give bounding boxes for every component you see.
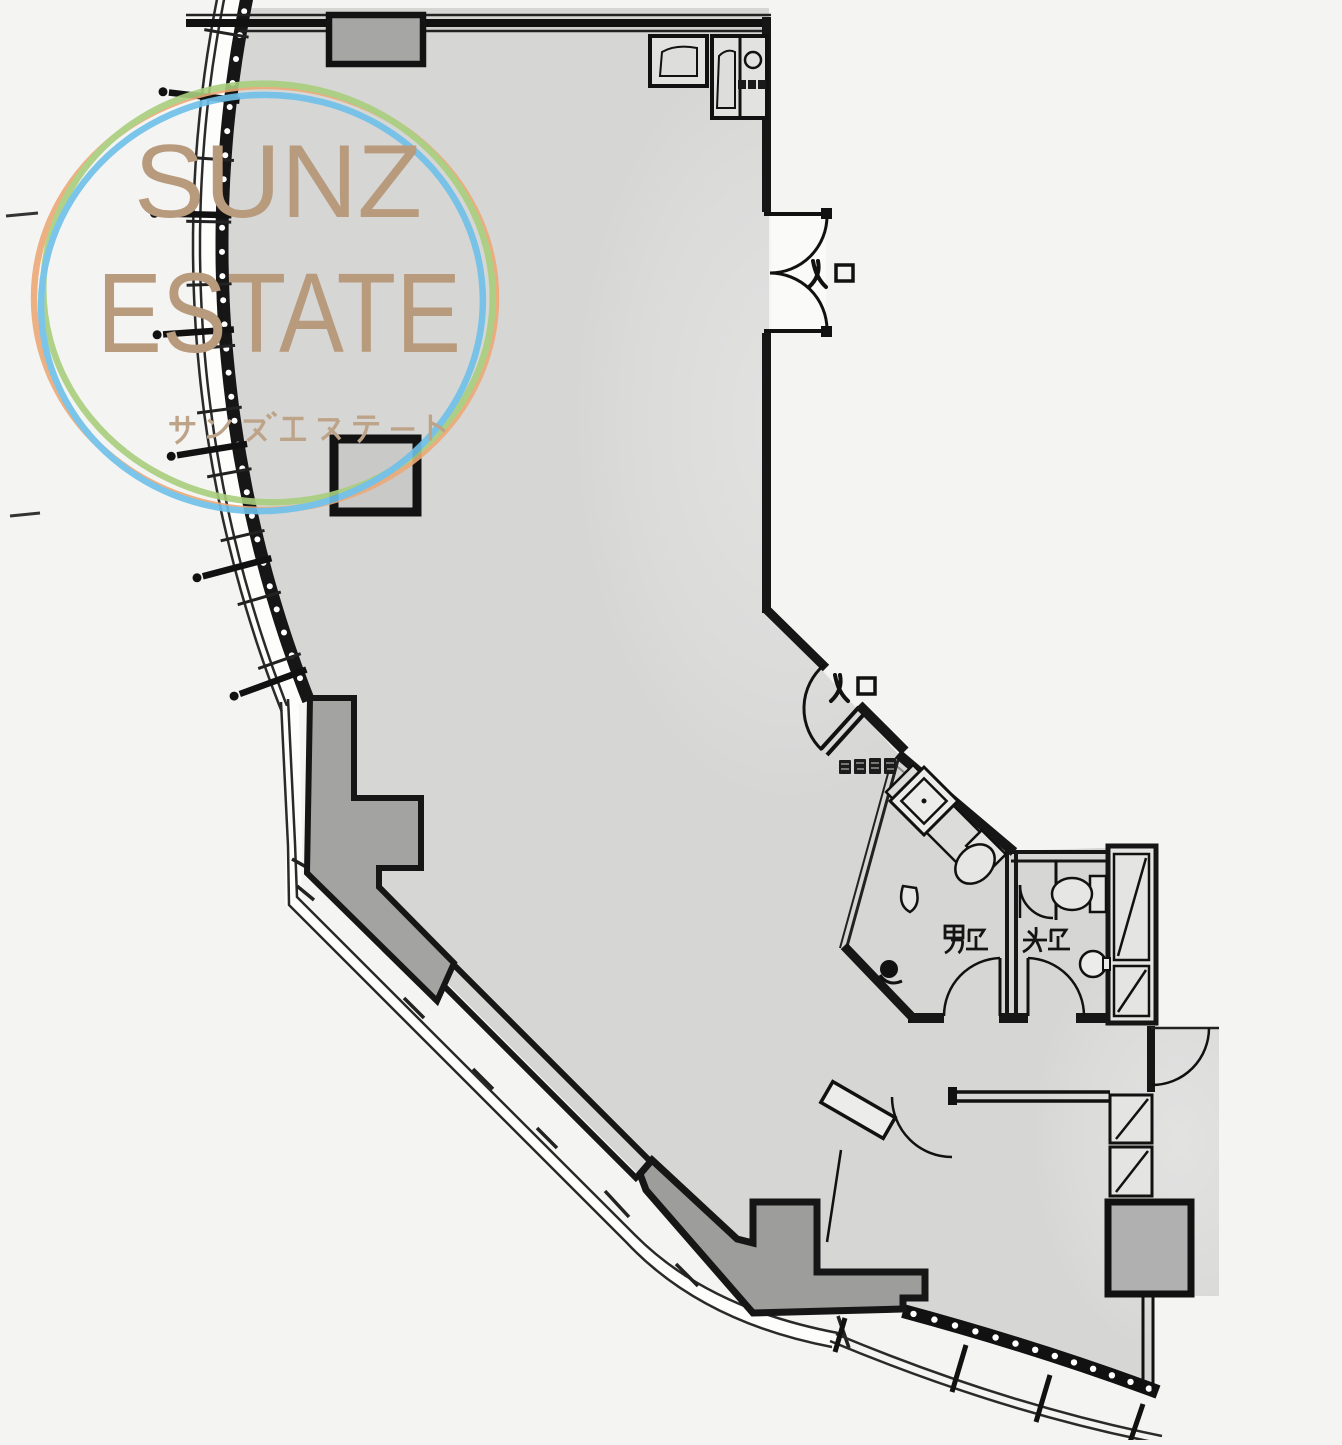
svg-text:SUNZ: SUNZ xyxy=(134,124,422,240)
svg-text:ESTATE: ESTATE xyxy=(97,250,461,376)
